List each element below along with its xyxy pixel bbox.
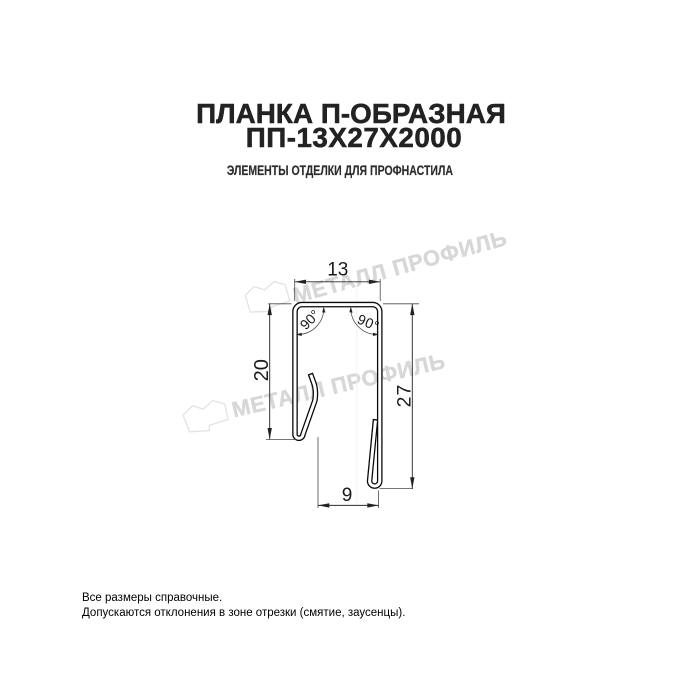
svg-text:27: 27 bbox=[393, 384, 415, 408]
svg-text:20: 20 bbox=[251, 359, 273, 381]
svg-text:90°: 90° bbox=[297, 306, 323, 332]
svg-text:МЕТАЛЛ ПРОФИЛЬ: МЕТАЛЛ ПРОФИЛЬ bbox=[290, 225, 510, 308]
svg-text:13: 13 bbox=[327, 260, 348, 281]
svg-text:9: 9 bbox=[342, 485, 353, 506]
